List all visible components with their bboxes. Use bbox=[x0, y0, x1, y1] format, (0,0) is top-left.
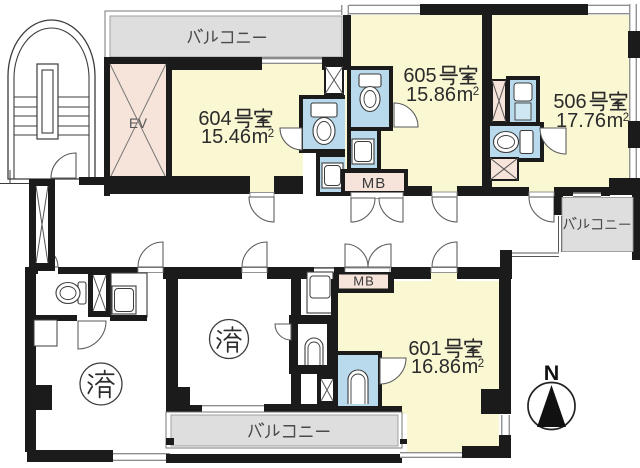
svg-text:16.86: 16.86 bbox=[411, 356, 461, 378]
svg-text:m: m bbox=[457, 84, 474, 106]
svg-text:m: m bbox=[607, 110, 624, 132]
svg-text:EV: EV bbox=[129, 116, 147, 131]
svg-text:N: N bbox=[544, 361, 560, 385]
svg-text:m: m bbox=[462, 356, 479, 378]
svg-text:MB: MB bbox=[353, 274, 375, 289]
svg-text:MB: MB bbox=[362, 175, 387, 192]
svg-text:2: 2 bbox=[473, 86, 479, 98]
svg-text:2: 2 bbox=[268, 128, 274, 140]
svg-text:15.86: 15.86 bbox=[406, 84, 456, 106]
svg-text:15.46: 15.46 bbox=[201, 126, 251, 148]
svg-text:m: m bbox=[252, 126, 269, 148]
svg-text:2: 2 bbox=[478, 358, 484, 370]
